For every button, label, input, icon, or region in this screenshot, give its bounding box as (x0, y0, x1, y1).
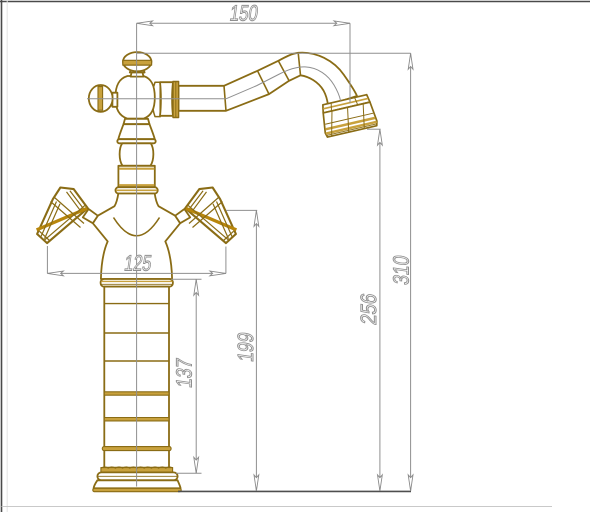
svg-text:137: 137 (172, 357, 197, 389)
svg-text:310: 310 (388, 254, 413, 286)
svg-text:199: 199 (233, 331, 258, 363)
svg-text:150: 150 (228, 1, 259, 26)
svg-text:125: 125 (123, 250, 153, 275)
svg-text:256: 256 (356, 292, 381, 326)
